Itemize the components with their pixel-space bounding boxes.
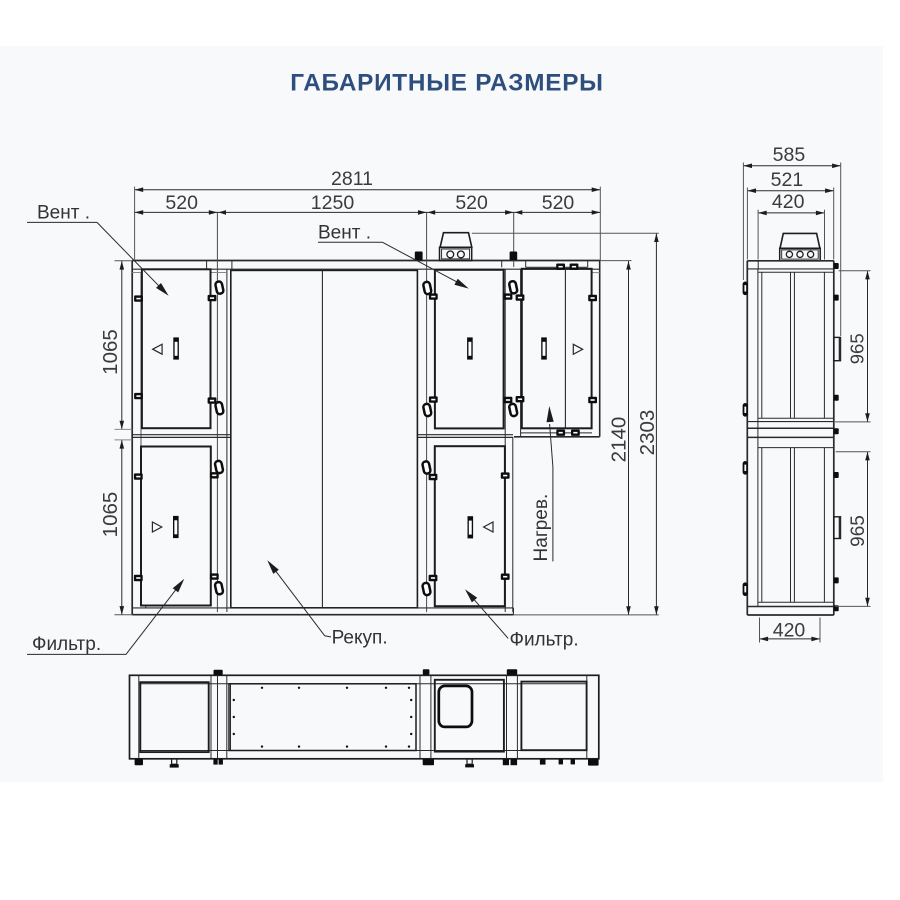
svg-text:Вент .: Вент . [318,222,371,243]
svg-text:521: 521 [771,169,804,191]
svg-text:2140: 2140 [608,417,631,463]
svg-text:965: 965 [846,333,867,364]
svg-text:Фильтр.: Фильтр. [32,634,101,655]
svg-text:ГАБАРИТНЫЕ РАЗМЕРЫ: ГАБАРИТНЫЕ РАЗМЕРЫ [290,70,603,97]
svg-text:585: 585 [773,144,806,166]
svg-text:420: 420 [773,619,806,641]
svg-text:420: 420 [772,191,805,213]
svg-text:Рекуп.: Рекуп. [332,628,388,649]
svg-text:1065: 1065 [99,492,122,538]
svg-text:Вент .: Вент . [37,203,90,224]
svg-text:Фильтр.: Фильтр. [510,630,579,651]
svg-text:520: 520 [455,192,488,214]
svg-text:1065: 1065 [99,329,122,375]
svg-text:965: 965 [848,515,869,547]
svg-text:520: 520 [165,192,198,214]
svg-text:2811: 2811 [331,168,373,190]
svg-text:2303: 2303 [636,410,659,456]
svg-text:Нагрев.: Нагрев. [531,494,552,562]
svg-text:520: 520 [542,192,575,214]
svg-text:1250: 1250 [311,192,355,214]
